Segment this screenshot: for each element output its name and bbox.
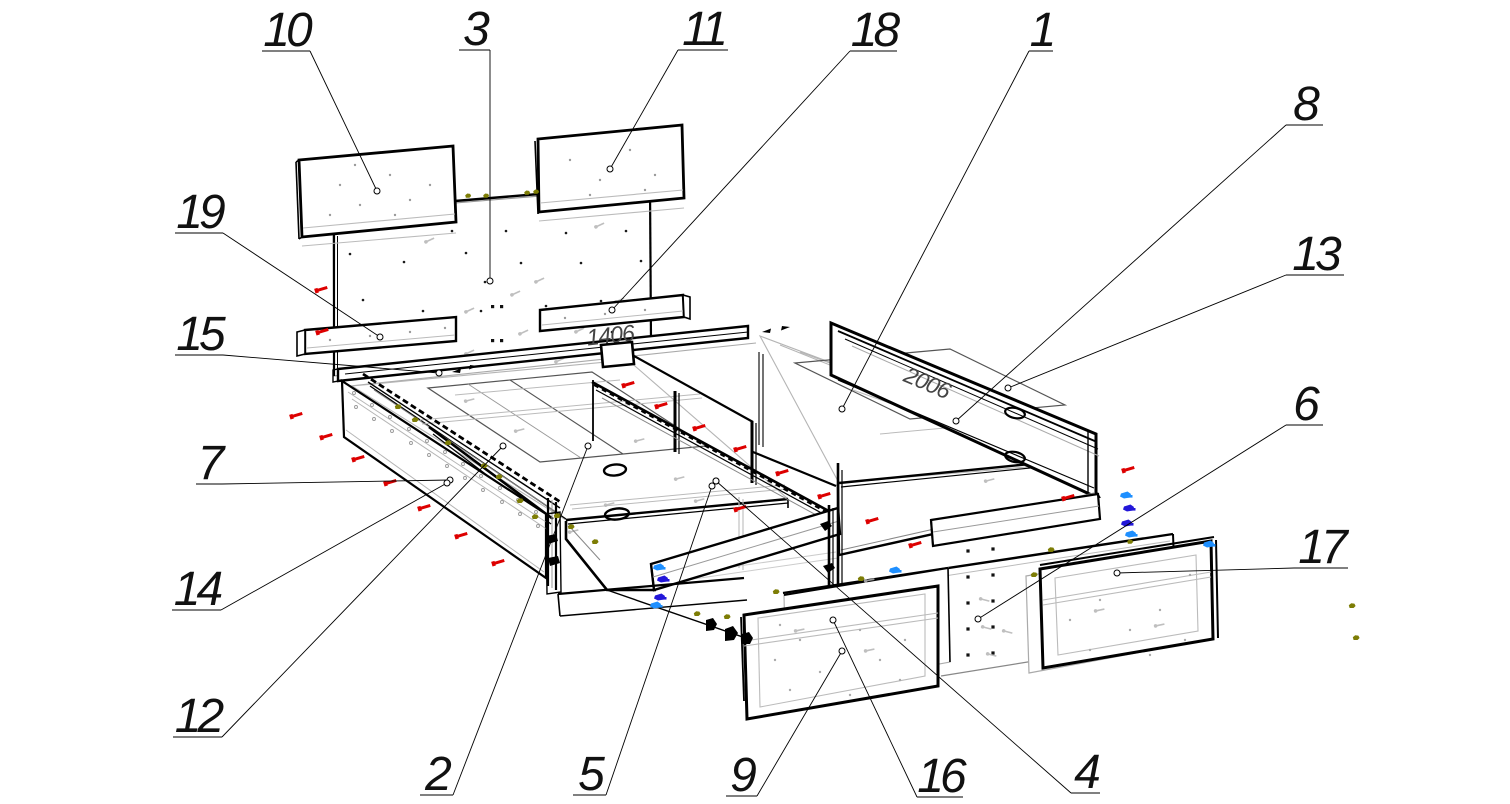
svg-text:18: 18 xyxy=(851,4,901,57)
svg-text:19: 19 xyxy=(176,186,225,239)
svg-text:12: 12 xyxy=(175,690,224,743)
svg-text:17: 17 xyxy=(1298,521,1350,574)
svg-text:11: 11 xyxy=(682,3,724,56)
svg-text:16: 16 xyxy=(917,750,967,803)
svg-text:4: 4 xyxy=(1074,746,1099,799)
svg-text:10: 10 xyxy=(263,4,313,57)
svg-text:2: 2 xyxy=(424,748,451,801)
svg-text:9: 9 xyxy=(730,749,756,802)
svg-text:15: 15 xyxy=(176,308,226,361)
svg-text:1: 1 xyxy=(1030,4,1053,57)
svg-text:14: 14 xyxy=(174,563,222,616)
svg-text:13: 13 xyxy=(1292,228,1342,281)
